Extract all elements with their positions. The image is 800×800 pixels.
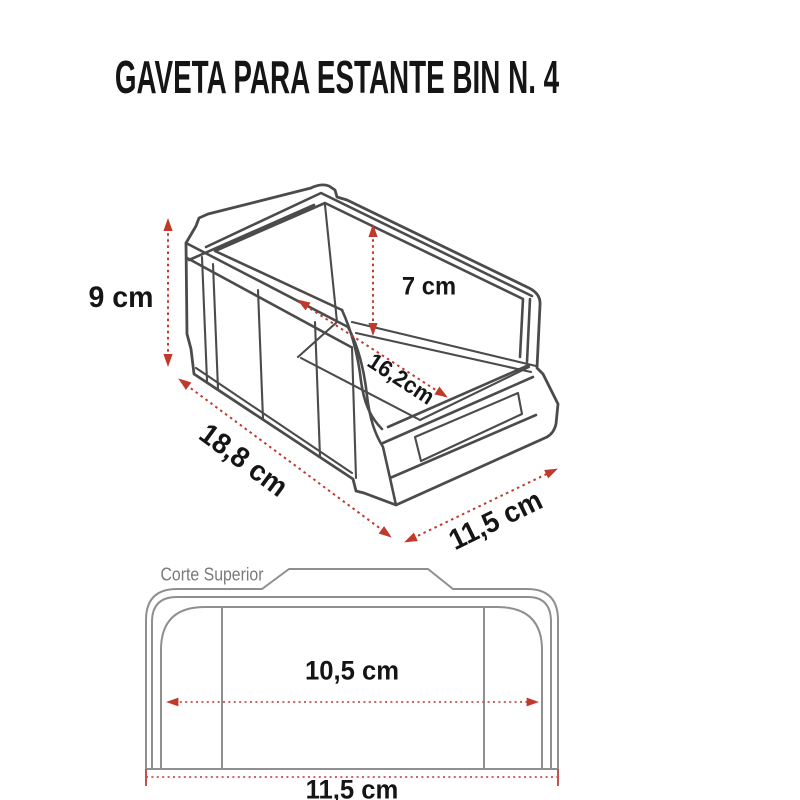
dimension-label-inner-width: 10,5 cm	[305, 658, 399, 685]
dimension-label-inner-height: 7 cm	[402, 275, 456, 300]
top-view-caption: Corte Superior	[160, 565, 263, 586]
diagram-page: GAVETA PARA ESTANTE BIN N. 4 9 cm 7 cm 1…	[0, 0, 800, 800]
page-title: GAVETA PARA ESTANTE BIN N. 4	[115, 50, 559, 104]
dimension-label-outer-width: 11,5 cm	[306, 777, 399, 800]
dimension-label-height: 9 cm	[89, 283, 154, 313]
dimension-height-9cm	[163, 218, 172, 367]
technical-drawing	[0, 0, 800, 800]
top-view-divider-lines	[222, 607, 484, 769]
